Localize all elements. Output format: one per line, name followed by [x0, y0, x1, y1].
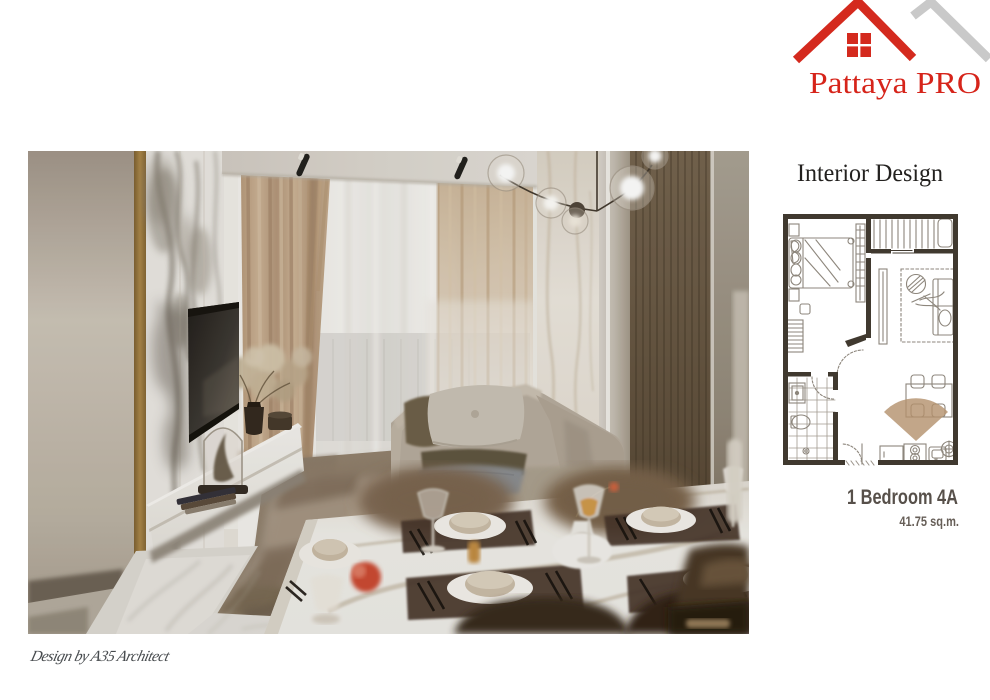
svg-text:41.75 sq.m.: 41.75 sq.m.: [899, 514, 959, 529]
svg-text:1 Bedroom 4A: 1 Bedroom 4A: [847, 485, 958, 508]
svg-text:Design by A35 Architect: Design by A35 Architect: [28, 648, 172, 665]
svg-text:Interior Design: Interior Design: [797, 160, 943, 187]
svg-text:Pattaya PRO: Pattaya PRO: [809, 65, 981, 100]
